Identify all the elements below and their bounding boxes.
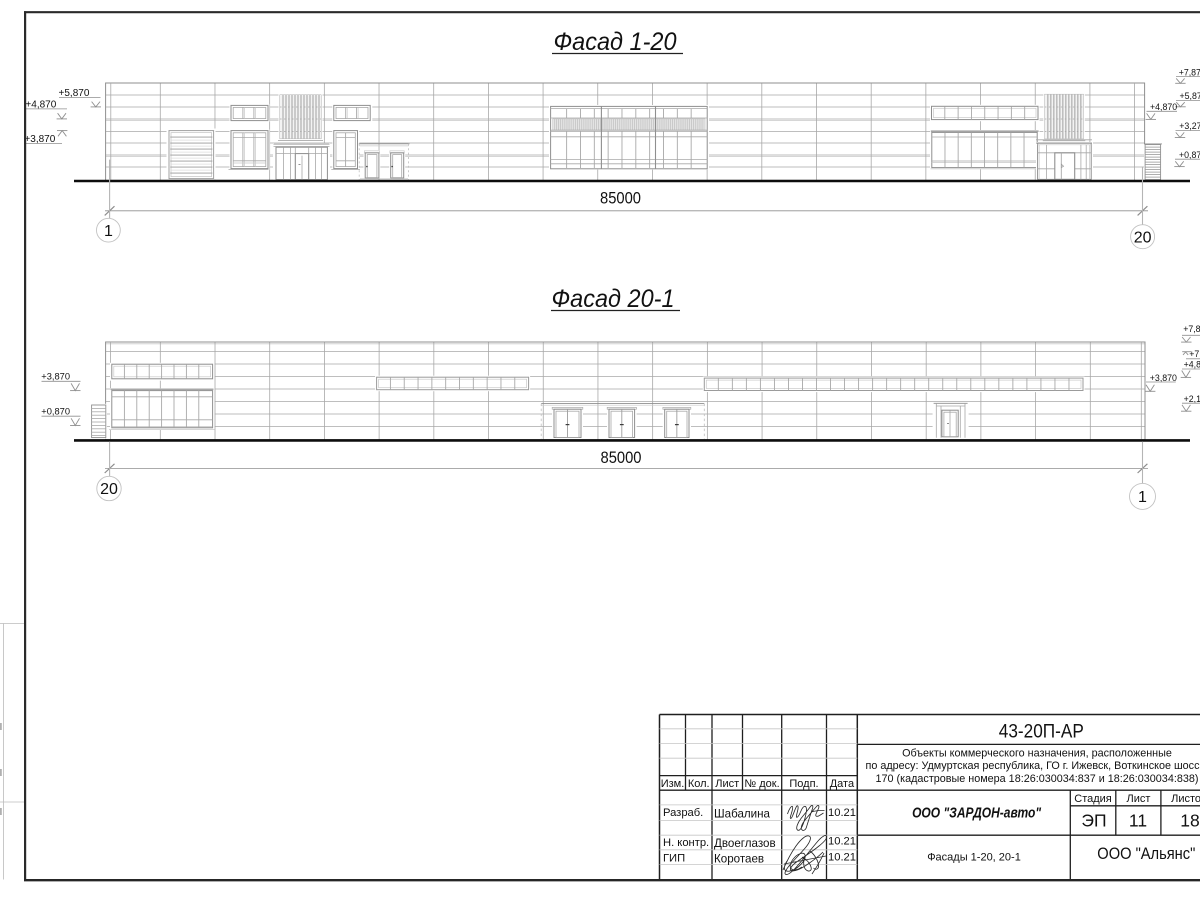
svg-text:Кол.: Кол. <box>688 778 710 790</box>
svg-text:Листов: Листов <box>1171 793 1200 805</box>
svg-text:Фасады 1-20, 20-1: Фасады 1-20, 20-1 <box>927 851 1021 863</box>
svg-text:+5,870: +5,870 <box>1180 91 1200 101</box>
svg-text:10.21: 10.21 <box>828 836 856 848</box>
svg-text:Лист: Лист <box>715 778 739 790</box>
svg-text:10.21: 10.21 <box>828 852 856 864</box>
svg-text:170 (кадастровые номера 18:26:: 170 (кадастровые номера 18:26:030034:837… <box>876 773 1199 785</box>
svg-text:ЭП: ЭП <box>1081 811 1106 831</box>
svg-text:+4,870: +4,870 <box>1184 360 1200 370</box>
svg-text:Фасад 1-20: Фасад 1-20 <box>554 28 677 56</box>
svg-text:ГИП: ГИП <box>663 853 685 865</box>
svg-text:1: 1 <box>104 223 113 240</box>
svg-text:11: 11 <box>1129 811 1147 831</box>
svg-text:+2,170: +2,170 <box>1184 394 1200 404</box>
svg-text:20: 20 <box>1134 229 1152 246</box>
svg-text:1: 1 <box>1138 489 1147 506</box>
svg-text:+7,870: +7,870 <box>1183 324 1200 334</box>
svg-text:по адресу: Удмуртская республи: по адресу: Удмуртская республика, ГО г. … <box>865 760 1200 772</box>
svg-text:85000: 85000 <box>601 449 642 467</box>
svg-text:+0,870: +0,870 <box>1179 150 1200 160</box>
svg-text:+4,870: +4,870 <box>1150 102 1177 112</box>
svg-text:Шабалина: Шабалина <box>714 808 771 821</box>
svg-text:+3,870: +3,870 <box>41 372 70 382</box>
svg-text:Коротаев: Коротаев <box>714 852 764 865</box>
svg-text:Двоеглазов: Двоеглазов <box>714 837 776 850</box>
svg-text:+3,270: +3,270 <box>1179 121 1200 131</box>
svg-text:ООО "ЗАРДОН-авто": ООО "ЗАРДОН-авто" <box>912 804 1042 821</box>
svg-text:+7,870: +7,870 <box>1179 67 1200 77</box>
svg-text:Разраб.: Разраб. <box>663 807 703 819</box>
svg-text:Объекты коммерческого назначен: Объекты коммерческого назначения, распол… <box>902 747 1172 759</box>
svg-text:Дата: Дата <box>830 778 855 790</box>
svg-text:Лист: Лист <box>1127 793 1151 805</box>
svg-text:+7,270: +7,270 <box>1189 349 1200 359</box>
svg-text:43-20П-АР: 43-20П-АР <box>999 721 1084 742</box>
svg-text:№ док.: № док. <box>744 778 779 790</box>
svg-text:Фасад 20-1: Фасад 20-1 <box>552 285 675 313</box>
svg-text:ООО "Альянс": ООО "Альянс" <box>1097 844 1195 863</box>
svg-text:10.21: 10.21 <box>828 807 856 819</box>
svg-text:85000: 85000 <box>600 190 641 208</box>
svg-text:+3,870: +3,870 <box>1150 373 1177 383</box>
svg-text:Стадия: Стадия <box>1074 793 1112 805</box>
svg-text:18: 18 <box>1180 811 1199 831</box>
svg-text:Подп.: Подп. <box>789 778 818 790</box>
svg-text:20: 20 <box>100 481 118 498</box>
svg-text:Н. контр.: Н. контр. <box>663 837 709 849</box>
svg-text:+0,870: +0,870 <box>41 407 70 417</box>
svg-text:Изм.: Изм. <box>661 778 685 790</box>
